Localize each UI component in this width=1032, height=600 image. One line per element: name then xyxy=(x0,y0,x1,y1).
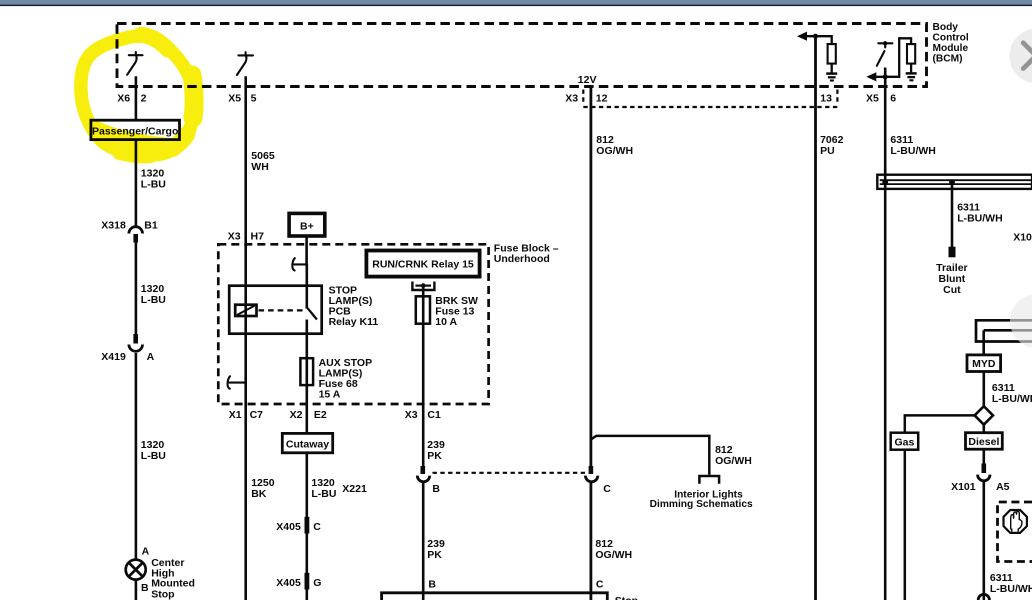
svg-text:13: 13 xyxy=(820,92,832,104)
svg-text:X5: X5 xyxy=(228,92,241,104)
svg-text:X6: X6 xyxy=(117,92,130,104)
svg-text:E2: E2 xyxy=(314,409,327,421)
svg-text:6: 6 xyxy=(890,92,896,104)
svg-text:C7: C7 xyxy=(250,409,264,421)
svg-text:L-BU/WH: L-BU/WH xyxy=(957,213,1003,225)
svg-text:B: B xyxy=(432,483,440,495)
svg-text:X405: X405 xyxy=(276,577,301,589)
svg-text:A5: A5 xyxy=(996,481,1010,493)
svg-text:12: 12 xyxy=(596,92,608,104)
svg-text:X3: X3 xyxy=(405,409,418,421)
svg-text:X1: X1 xyxy=(229,409,242,421)
svg-text:OG/WH: OG/WH xyxy=(715,455,752,467)
svg-text:X2: X2 xyxy=(290,409,303,421)
svg-text:PU: PU xyxy=(820,145,835,157)
svg-text:H7: H7 xyxy=(251,230,265,242)
svg-text:B+: B+ xyxy=(300,221,314,233)
svg-text:G: G xyxy=(313,577,321,589)
svg-text:X101: X101 xyxy=(951,481,976,493)
svg-text:Stop: Stop xyxy=(151,588,174,600)
svg-text:X3: X3 xyxy=(565,92,578,104)
svg-text:C: C xyxy=(596,579,604,591)
svg-text:Cut: Cut xyxy=(943,284,961,296)
svg-text:15 A: 15 A xyxy=(319,388,341,400)
svg-text:Stop: Stop xyxy=(615,595,638,600)
svg-text:Cutaway: Cutaway xyxy=(286,438,329,450)
svg-text:A: A xyxy=(142,545,150,557)
svg-text:Gas: Gas xyxy=(894,436,914,448)
svg-text:Control: Control xyxy=(933,32,969,43)
svg-text:L-BU/WH: L-BU/WH xyxy=(992,393,1032,405)
svg-text:OG/WH: OG/WH xyxy=(596,145,633,157)
svg-text:MYD: MYD xyxy=(972,358,996,370)
svg-text:X5: X5 xyxy=(866,92,879,104)
svg-text:X318: X318 xyxy=(101,219,126,231)
svg-text:RUN/CRNK Relay 15: RUN/CRNK Relay 15 xyxy=(372,259,474,271)
svg-text:Body: Body xyxy=(933,22,959,33)
svg-text:5: 5 xyxy=(251,92,257,104)
svg-text:C1: C1 xyxy=(427,409,441,421)
svg-text:X3: X3 xyxy=(228,230,241,242)
svg-text:Diesel: Diesel xyxy=(968,436,999,448)
svg-text:B: B xyxy=(141,582,149,594)
svg-text:L-BU: L-BU xyxy=(141,294,166,306)
svg-text:BK: BK xyxy=(251,488,267,500)
svg-text:10 A: 10 A xyxy=(435,316,457,328)
svg-text:X10: X10 xyxy=(1013,232,1032,244)
svg-text:OG/WH: OG/WH xyxy=(595,549,632,561)
svg-text:Underhood: Underhood xyxy=(494,253,550,265)
svg-text:A: A xyxy=(147,351,155,363)
svg-text:X221: X221 xyxy=(342,483,367,495)
svg-text:(BCM): (BCM) xyxy=(933,53,963,64)
svg-text:L-BU: L-BU xyxy=(141,179,166,191)
svg-text:Dimming Schematics: Dimming Schematics xyxy=(650,499,753,510)
svg-text:B1: B1 xyxy=(144,219,158,231)
svg-text:2: 2 xyxy=(141,92,147,104)
svg-text:Module: Module xyxy=(933,43,969,54)
svg-text:PK: PK xyxy=(427,549,442,561)
svg-text:L-BU: L-BU xyxy=(311,488,336,500)
svg-text:B: B xyxy=(428,579,436,591)
svg-text:X419: X419 xyxy=(101,351,126,363)
svg-text:C: C xyxy=(603,483,611,495)
svg-text:L-BU/WH: L-BU/WH xyxy=(890,145,936,157)
svg-text:X405: X405 xyxy=(276,521,301,533)
svg-text:L-BU: L-BU xyxy=(141,450,166,462)
svg-text:PK: PK xyxy=(427,450,442,462)
svg-text:WH: WH xyxy=(251,161,268,173)
svg-text:Relay K11: Relay K11 xyxy=(329,316,379,328)
svg-text:C: C xyxy=(313,521,321,533)
svg-text:12V: 12V xyxy=(578,74,597,86)
svg-text:L-BU/WH: L-BU/WH xyxy=(990,583,1032,595)
